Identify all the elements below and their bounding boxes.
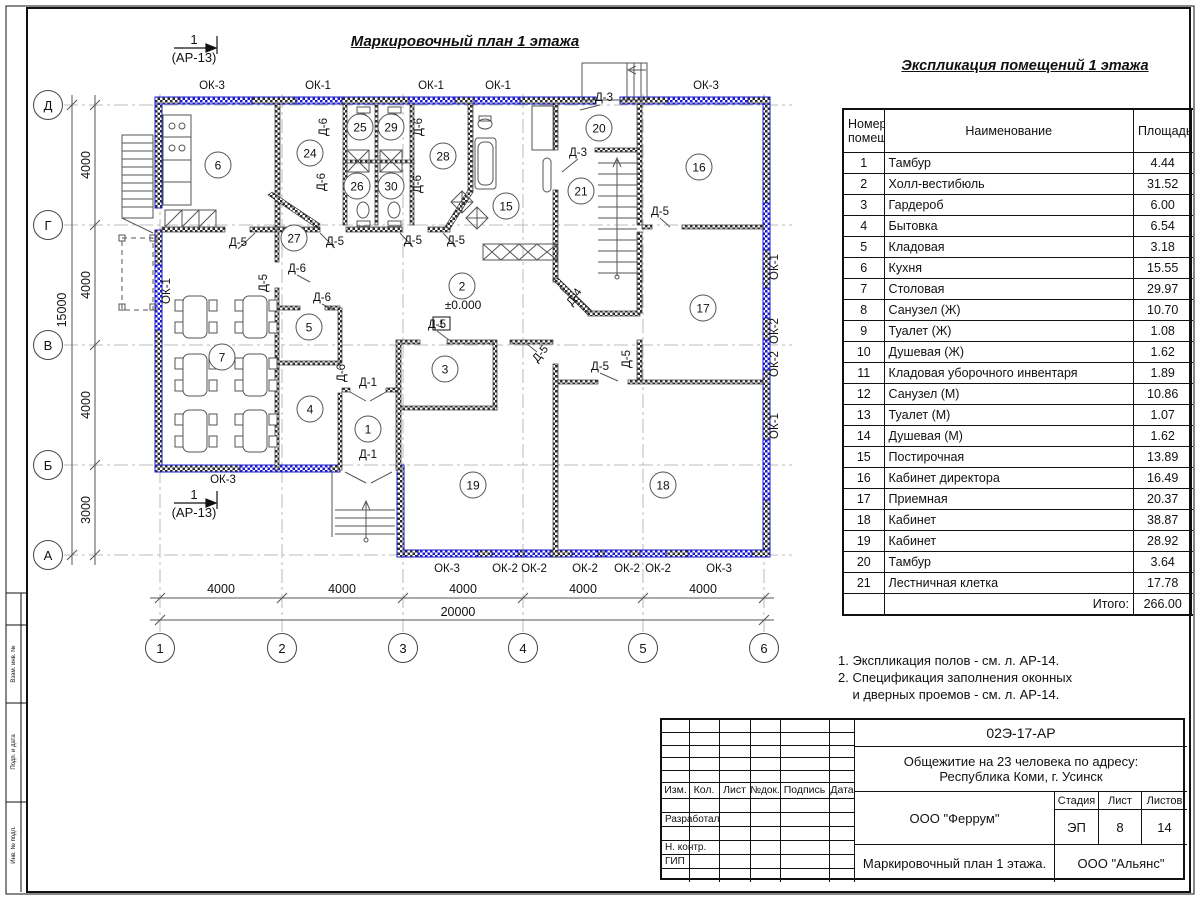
table	[243, 354, 267, 396]
col-header-area: Площадь	[1133, 109, 1192, 153]
opening-label: Д-6	[288, 263, 306, 275]
dining-tables	[175, 296, 277, 452]
chair	[269, 322, 277, 333]
room-name-cell: Лестничная клетка	[884, 573, 1133, 594]
section-mark-number-2: 1	[190, 487, 197, 502]
opening-label: ОК-1	[305, 80, 331, 92]
tb-org1: ООО "Феррум"	[855, 792, 1055, 845]
room-area-cell: 1.07	[1133, 405, 1192, 426]
tb-drawing-name: Маркировочный план 1 этажа.	[855, 845, 1055, 882]
tb-project-name: Общежитие на 23 человека по адресу:Респу…	[855, 747, 1187, 792]
chair	[209, 322, 217, 333]
room-number: 6	[215, 159, 222, 173]
opening-label: ОК-3	[693, 80, 719, 92]
tb-sheet-label: Лист	[1099, 792, 1142, 810]
explication-row: 13 Туалет (М) 1.07	[843, 405, 1193, 426]
room-name-cell: Бытовка	[884, 216, 1133, 237]
chair	[175, 358, 183, 369]
room-number-cell: 20	[843, 552, 884, 573]
explication-row: 5 Кладовая 3.18	[843, 237, 1193, 258]
room-number: 7	[219, 351, 226, 365]
opening-label: ОК-2	[492, 563, 518, 575]
room-name-cell: Холл-вестибюль	[884, 174, 1133, 195]
room-number: 4	[307, 403, 314, 417]
opening-label: ОК-3	[706, 563, 732, 575]
room-extra-cell	[1192, 363, 1193, 384]
room-area-cell: 6.00	[1133, 195, 1192, 216]
tb-row-razrabotal: Разработал	[662, 812, 722, 826]
tb-col-ndok: №док.	[750, 782, 780, 798]
table	[243, 296, 267, 338]
axis-label: 5	[639, 641, 646, 656]
room-name-cell: Постирочная	[884, 447, 1133, 468]
room-name-cell: Тамбур	[884, 552, 1133, 573]
explication-row: 21 Лестничная клетка 17.78	[843, 573, 1193, 594]
chair	[235, 300, 243, 311]
room-name-cell: Туалет (М)	[884, 405, 1133, 426]
opening-label: ОК-3	[210, 474, 236, 486]
chair	[175, 300, 183, 311]
room-name-cell: Душевая (Ж)	[884, 342, 1133, 363]
room-number-cell: 6	[843, 258, 884, 279]
axis-bubbles: 123456ДГВБА	[34, 91, 779, 663]
room-area-cell: 3.18	[1133, 237, 1192, 258]
dimension-lines	[67, 95, 774, 625]
chair	[235, 414, 243, 425]
opening-label: Д-5	[447, 235, 465, 247]
axis-label: А	[44, 548, 53, 563]
tb-col-list: Лист	[719, 782, 750, 798]
opening-label: ОК-3	[434, 563, 460, 575]
tb-sheets-label: Листов	[1142, 792, 1187, 810]
chair	[269, 380, 277, 391]
room-area-cell: 29.97	[1133, 279, 1192, 300]
tb-row-nkontr: Н. контр.	[662, 840, 722, 854]
room-number-cell: 9	[843, 321, 884, 342]
axis-label: 3	[399, 641, 406, 656]
room-extra-cell	[1192, 384, 1193, 405]
room-extra-cell	[1192, 447, 1193, 468]
room-number-cell: 13	[843, 405, 884, 426]
axis-label: 6	[760, 641, 767, 656]
opening-label: Д-5	[258, 274, 270, 292]
room-number-cell: 8	[843, 300, 884, 321]
room-number-cell: 1	[843, 153, 884, 174]
room-area-cell: 17.78	[1133, 573, 1192, 594]
room-name-cell: Кабинет директора	[884, 468, 1133, 489]
room-extra-cell	[1192, 552, 1193, 573]
notes: 1. Экспликация полов - см. л. АР-14. 2. …	[838, 652, 1072, 703]
room-number-cell: 15	[843, 447, 884, 468]
room-area-cell: 1.08	[1133, 321, 1192, 342]
room-extra-cell	[1192, 468, 1193, 489]
col-header-num: Номерпомещ.	[843, 109, 884, 153]
opening-label: Д-5	[428, 319, 446, 331]
explication-row: 14 Душевая (М) 1.62	[843, 426, 1193, 447]
explication-row: 15 Постирочная 13.89	[843, 447, 1193, 468]
opening-label: ОК-2	[645, 563, 671, 575]
dimension-labels: 4000400040004000400020000400040004000300…	[55, 151, 717, 619]
title-block: Изм. Кол. Лист №док. Подпись Дата Разраб…	[660, 718, 1185, 880]
opening-label: ОК-1	[485, 80, 511, 92]
table	[183, 354, 207, 396]
axis-label: 1	[156, 641, 163, 656]
opening-label: ОК-1	[769, 413, 781, 439]
room-number-cell: 4	[843, 216, 884, 237]
chair	[209, 380, 217, 391]
room-extra-cell	[1192, 300, 1193, 321]
room-number-cell: 14	[843, 426, 884, 447]
explication-row: 7 Столовая 29.97	[843, 279, 1193, 300]
room-number: 24	[303, 147, 317, 161]
dimension-label: 3000	[79, 496, 93, 524]
opening-label: ОК-1	[161, 278, 173, 304]
opening-label: Д-6	[412, 175, 424, 193]
axis-label: В	[44, 338, 53, 353]
room-extra-cell	[1192, 342, 1193, 363]
chair	[175, 436, 183, 447]
tb-project-line2: Республика Коми, г. Усинск	[904, 769, 1138, 784]
room-number: 30	[384, 180, 398, 194]
side-stamp-2: Подп. и дата	[11, 734, 17, 770]
opening-label: ОК-2	[769, 351, 781, 377]
room-name-cell: Кабинет	[884, 531, 1133, 552]
room-number: 3	[442, 363, 449, 377]
explication-row: 17 Приемная 20.37	[843, 489, 1193, 510]
tb-col-data: Дата	[829, 782, 855, 798]
explication-row: 4 Бытовка 6.54	[843, 216, 1193, 237]
table	[183, 410, 207, 452]
opening-label: ОК-3	[199, 80, 225, 92]
chair	[269, 300, 277, 311]
side-stamp-1: Взам. инв. №	[10, 645, 17, 682]
opening-label: Д-5	[326, 236, 344, 248]
tb-org2: ООО "Альянс"	[1055, 845, 1187, 882]
chair	[235, 436, 243, 447]
explication-title: Экспликация помещений 1 этажа	[860, 58, 1190, 74]
room-number: 26	[350, 180, 364, 194]
room-extra-cell	[1192, 279, 1193, 300]
tb-row-gip: ГИП	[662, 854, 722, 868]
chair	[269, 358, 277, 369]
chair	[235, 358, 243, 369]
explication-row: 10 Душевая (Ж) 1.62	[843, 342, 1193, 363]
explication-row: 2 Холл-вестибюль 31.52	[843, 174, 1193, 195]
room-number: 2	[459, 280, 466, 294]
axis-label: 4	[519, 641, 526, 656]
dimension-label: 4000	[79, 271, 93, 299]
room-area-cell: 28.92	[1133, 531, 1192, 552]
chair	[175, 414, 183, 425]
room-name-cell: Санузел (Ж)	[884, 300, 1133, 321]
chair	[209, 414, 217, 425]
note-2: 2. Спецификация заполнения оконных	[838, 670, 1072, 685]
room-area-cell: 3.64	[1133, 552, 1192, 573]
tb-col-podpis: Подпись	[780, 782, 829, 798]
tb-stage-label: Стадия	[1055, 792, 1099, 810]
dimension-label: 4000	[328, 582, 356, 596]
tb-stage-value: ЭП	[1055, 810, 1099, 845]
room-area-cell: 10.86	[1133, 384, 1192, 405]
room-extra-cell	[1192, 573, 1193, 594]
explication-total-row: Итого: 266.00	[843, 594, 1193, 616]
opening-label: ОК-1	[769, 254, 781, 280]
room-number-cell: 21	[843, 573, 884, 594]
room-number-cell: 18	[843, 510, 884, 531]
room-area-cell: 4.44	[1133, 153, 1192, 174]
dimension-label: 4000	[689, 582, 717, 596]
dimension-label: 4000	[449, 582, 477, 596]
room-area-cell: 1.89	[1133, 363, 1192, 384]
total-label: Итого:	[884, 594, 1133, 616]
opening-label: Д-5	[229, 237, 247, 249]
room-extra-cell	[1192, 321, 1193, 342]
dimension-label: 4000	[79, 151, 93, 179]
room-number-cell: 12	[843, 384, 884, 405]
section-mark-ref: (АР-13)	[172, 50, 217, 65]
room-area-cell: 1.62	[1133, 426, 1192, 447]
room-name-cell: Санузел (М)	[884, 384, 1133, 405]
room-number-cell: 10	[843, 342, 884, 363]
room-extra-cell	[1192, 405, 1193, 426]
room-extra-cell	[1192, 258, 1193, 279]
dimension-label: 15000	[55, 293, 69, 328]
opening-label: Д-5	[621, 350, 633, 368]
total-value: 266.00	[1133, 594, 1192, 616]
room-area-cell: 6.54	[1133, 216, 1192, 237]
room-number: 1	[365, 423, 372, 437]
explication-row: 9 Туалет (Ж) 1.08	[843, 321, 1193, 342]
room-name-cell: Столовая	[884, 279, 1133, 300]
room-extra-cell	[1192, 510, 1193, 531]
axis-label: Б	[44, 458, 53, 473]
opening-label: Д-5	[591, 361, 609, 373]
dimension-label: 20000	[441, 605, 476, 619]
tb-col-izm: Изм.	[662, 782, 689, 798]
room-name-cell: Туалет (Ж)	[884, 321, 1133, 342]
opening-label: ОК-2	[521, 563, 547, 575]
room-number: 27	[287, 232, 301, 246]
room-extra-cell	[1192, 531, 1193, 552]
explication-row: 18 Кабинет 38.87	[843, 510, 1193, 531]
tb-project-line1: Общежитие на 23 человека по адресу:	[904, 754, 1138, 769]
opening-label: Д-5	[651, 206, 669, 218]
opening-label: Д-6	[318, 118, 330, 136]
room-extra-cell	[1192, 237, 1193, 258]
opening-label: Д-5	[530, 343, 551, 365]
room-area-cell: 31.52	[1133, 174, 1192, 195]
room-area-cell: 13.89	[1133, 447, 1192, 468]
explication-rows: 1 Тамбур 4.44 2 Холл-вестибюль 31.52 3 Г…	[843, 153, 1193, 594]
room-extra-cell	[1192, 195, 1193, 216]
table	[183, 296, 207, 338]
col-header-name: Наименование	[884, 109, 1133, 153]
room-number: 28	[436, 150, 450, 164]
axis-label: Г	[44, 218, 51, 233]
tb-doc-code: 02Э-17-АР	[855, 720, 1187, 747]
explication-row: 8 Санузел (Ж) 10.70	[843, 300, 1193, 321]
room-number-cell: 2	[843, 174, 884, 195]
room-name-cell: Тамбур	[884, 153, 1133, 174]
explication-row: 6 Кухня 15.55	[843, 258, 1193, 279]
axis-label: 2	[278, 641, 285, 656]
opening-label: ОК-2	[572, 563, 598, 575]
explication-row: 1 Тамбур 4.44	[843, 153, 1193, 174]
room-number-cell: 16	[843, 468, 884, 489]
note-3: и дверных проемов - см. л. АР-14.	[838, 687, 1059, 702]
dimension-label: 4000	[207, 582, 235, 596]
tb-sheet-value: 8	[1099, 810, 1142, 845]
room-number: 17	[696, 302, 710, 316]
chair	[175, 380, 183, 391]
table	[243, 410, 267, 452]
opening-label: Д-6	[316, 173, 328, 191]
room-name-cell: Гардероб	[884, 195, 1133, 216]
opening-label: Д-6	[313, 292, 331, 304]
section-mark-number: 1	[190, 32, 197, 47]
drawing-sheet: Взам. инв. № Подп. и дата Инв. № подл.	[0, 0, 1200, 900]
room-number-cell: 19	[843, 531, 884, 552]
chair	[269, 436, 277, 447]
room-area-cell: 1.62	[1133, 342, 1192, 363]
explication-row: 3 Гардероб 6.00	[843, 195, 1193, 216]
opening-label: Д-5	[404, 235, 422, 247]
opening-label: Д-6	[413, 118, 425, 136]
explication-row: 12 Санузел (М) 10.86	[843, 384, 1193, 405]
room-area-cell: 10.70	[1133, 300, 1192, 321]
room-name-cell: Кабинет	[884, 510, 1133, 531]
room-name-cell: Кладовая	[884, 237, 1133, 258]
opening-label: ОК-1	[418, 80, 444, 92]
room-name-cell: Кухня	[884, 258, 1133, 279]
room-area-cell: 20.37	[1133, 489, 1192, 510]
side-stamp-3: Инв. № подл.	[10, 826, 17, 864]
room-number-cell: 7	[843, 279, 884, 300]
opening-label: Д-3	[569, 147, 587, 159]
chair	[269, 414, 277, 425]
opening-label: ОК-2	[614, 563, 640, 575]
room-extra-cell	[1192, 153, 1193, 174]
opening-label: Д-3	[595, 92, 613, 104]
room-area-cell: 16.49	[1133, 468, 1192, 489]
room-number-cell: 3	[843, 195, 884, 216]
room-name-cell: Приемная	[884, 489, 1133, 510]
tb-col-kol: Кол.	[689, 782, 719, 798]
room-number: 25	[353, 121, 367, 135]
opening-label: Д-1	[359, 449, 377, 461]
room-number: 18	[656, 479, 670, 493]
room-number-cell: 5	[843, 237, 884, 258]
room-name-cell: Кладовая уборочного инвентаря	[884, 363, 1133, 384]
side-stamp-labels: Взам. инв. № Подп. и дата Инв. № подл.	[10, 645, 17, 863]
room-number: 5	[306, 321, 313, 335]
room-number-cell: 17	[843, 489, 884, 510]
chair	[235, 380, 243, 391]
room-number: 15	[499, 200, 513, 214]
room-extra-cell	[1192, 489, 1193, 510]
axis-label: Д	[44, 98, 53, 113]
col-header-extra: Капо	[1192, 109, 1193, 153]
opening-label: ОК-2	[769, 318, 781, 344]
explication-row: 20 Тамбур 3.64	[843, 552, 1193, 573]
plan-title: Маркировочный план 1 этажа	[300, 33, 630, 50]
section-mark-ref-2: (АР-13)	[172, 505, 217, 520]
tb-sheets-value: 14	[1142, 810, 1187, 845]
level-mark-text: ±0.000	[445, 298, 482, 312]
dimension-label: 4000	[79, 391, 93, 419]
explication-table: Номерпомещ. Наименование Площадь Капо 1 …	[842, 108, 1193, 616]
room-name-cell: Душевая (М)	[884, 426, 1133, 447]
room-number: 16	[692, 161, 706, 175]
explication-row: 11 Кладовая уборочного инвентаря 1.89	[843, 363, 1193, 384]
chair	[209, 436, 217, 447]
chair	[175, 322, 183, 333]
room-extra-cell	[1192, 174, 1193, 195]
room-number: 19	[466, 479, 480, 493]
explication-header-row: Номерпомещ. Наименование Площадь Капо	[843, 109, 1193, 153]
room-extra-cell	[1192, 216, 1193, 237]
room-extra-cell	[1192, 426, 1193, 447]
room-area-cell: 15.55	[1133, 258, 1192, 279]
chair	[235, 322, 243, 333]
note-1: 1. Экспликация полов - см. л. АР-14.	[838, 653, 1059, 668]
room-number-cell: 11	[843, 363, 884, 384]
opening-label: Д-1	[359, 377, 377, 389]
room-number: 21	[574, 185, 588, 199]
room-number: 20	[592, 122, 606, 136]
opening-label: Д-6	[336, 364, 348, 382]
dimension-label: 4000	[569, 582, 597, 596]
explication-row: 16 Кабинет директора 16.49	[843, 468, 1193, 489]
room-number: 29	[384, 121, 398, 135]
explication-row: 19 Кабинет 28.92	[843, 531, 1193, 552]
chair	[209, 300, 217, 311]
room-area-cell: 38.87	[1133, 510, 1192, 531]
